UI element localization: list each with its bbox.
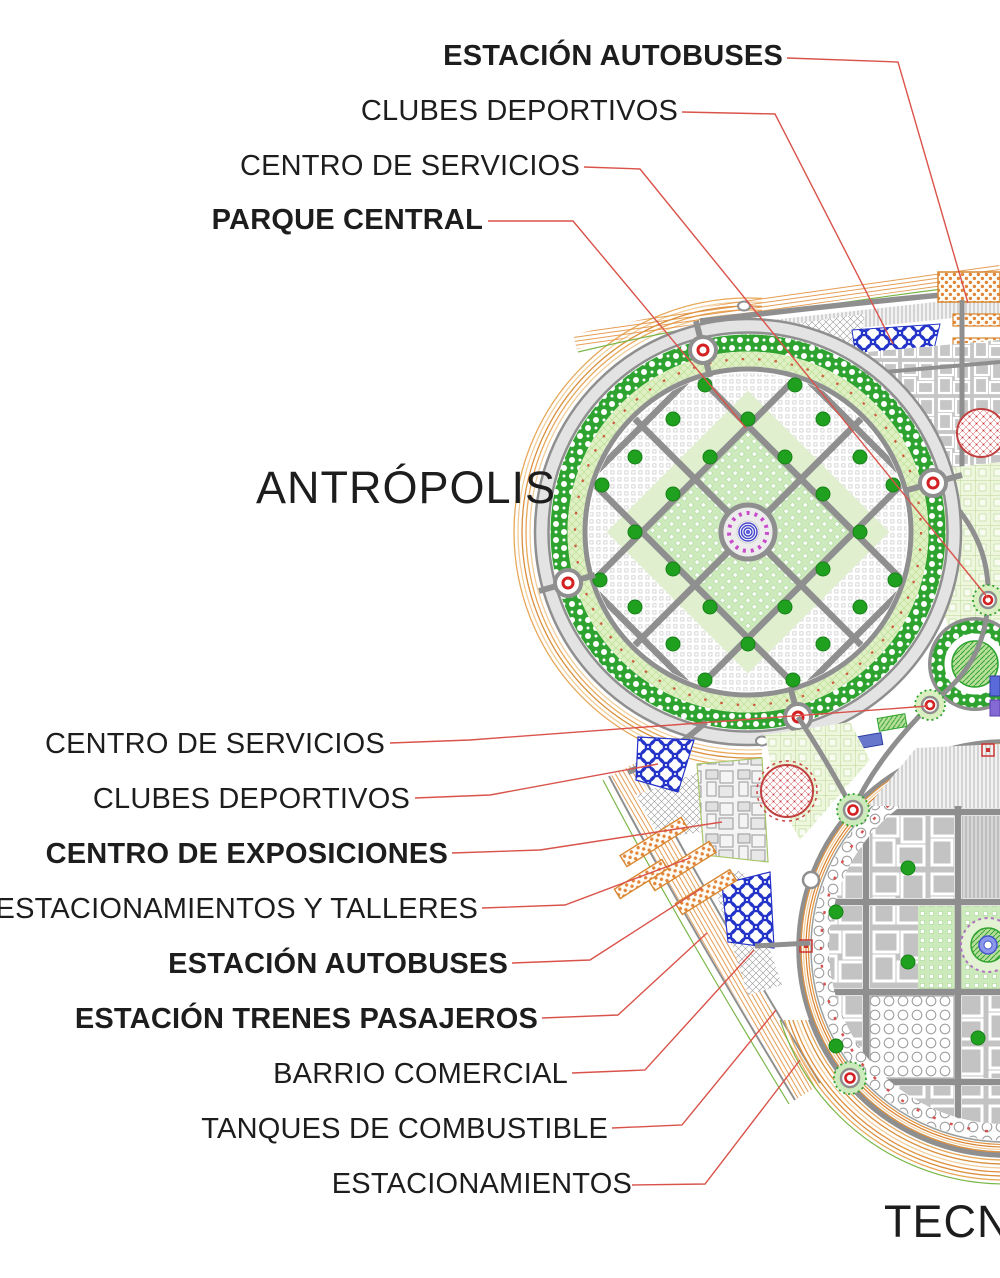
callout-clubes-deportivos-top: CLUBES DEPORTIVOS	[361, 97, 678, 126]
callout-estacion-trenes: ESTACIÓN TRENES PASAJEROS	[75, 1005, 538, 1034]
masterplan-canvas: ESTACIÓN AUTOBUSES CLUBES DEPORTIVOS CEN…	[0, 0, 1000, 1278]
callout-parque-central: PARQUE CENTRAL	[212, 206, 483, 235]
callout-tanques-combustible: TANQUES DE COMBUSTIBLE	[201, 1115, 608, 1144]
callout-estacion-autobuses-top: ESTACIÓN AUTOBUSES	[443, 42, 783, 71]
callout-centro-servicios-top: CENTRO DE SERVICIOS	[240, 152, 580, 181]
callout-centro-exposiciones: CENTRO DE EXPOSICIONES	[46, 840, 448, 869]
leader-estacionamientos	[632, 1060, 800, 1185]
callout-estacion-autobuses-left: ESTACIÓN AUTOBUSES	[168, 950, 508, 979]
bus-station-bars	[938, 272, 1000, 302]
leader-estacion-trenes	[542, 933, 707, 1018]
leader-estacion-autobuses-top	[787, 58, 968, 303]
callout-centro-servicios-left: CENTRO DE SERVICIOS	[45, 730, 385, 759]
central-fountain-plaza	[721, 505, 775, 559]
callout-barrio-comercial: BARRIO COMERCIAL	[273, 1060, 568, 1089]
district-label-antropolis: ANTRÓPOLIS	[256, 462, 556, 514]
leader-estacion-autobuses-left	[512, 888, 702, 963]
callout-clubes-deportivos-left: CLUBES DEPORTIVOS	[93, 785, 410, 814]
district-label-tecnopolis: TECNÓPOLIS	[884, 1196, 1000, 1248]
callout-estacionamientos: ESTACIONAMIENTOS	[332, 1170, 632, 1199]
callout-estacionamientos-talleres: ESTACIONAMIENTOS Y TALLERES	[0, 895, 478, 924]
arena-center	[761, 765, 813, 817]
arena-ne	[957, 409, 1000, 457]
